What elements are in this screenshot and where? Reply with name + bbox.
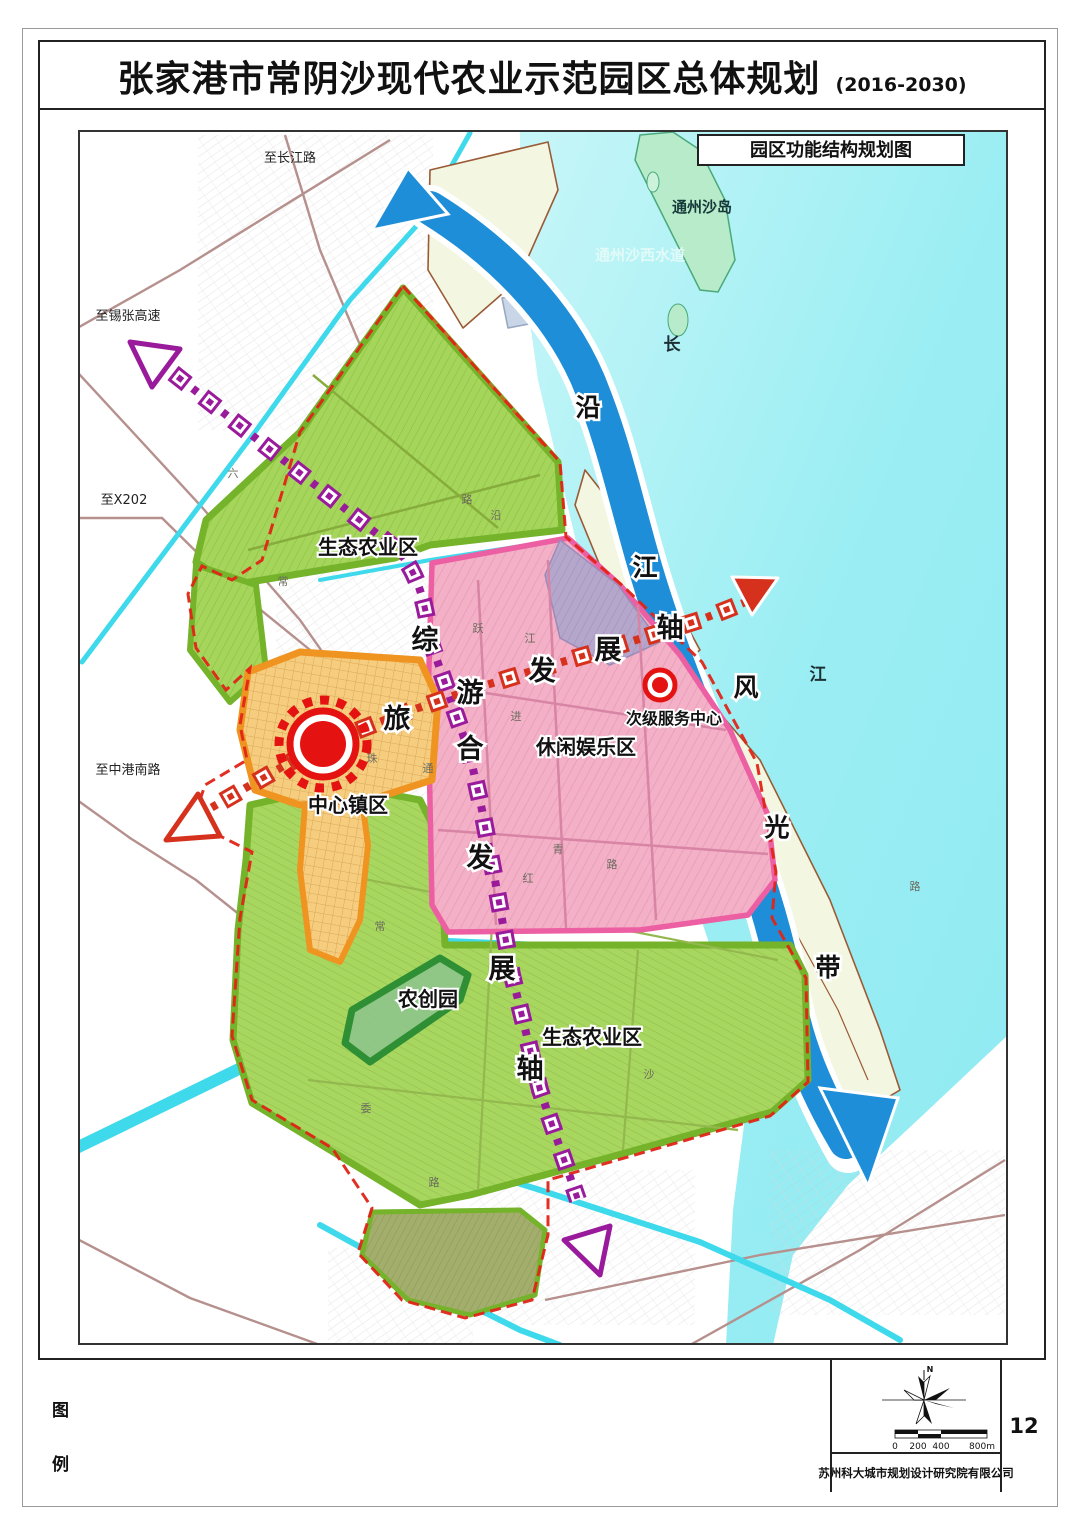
- road-name-char: 沿: [491, 509, 502, 522]
- road-name-char: 常: [278, 575, 289, 588]
- compass-and-scale: N 0 200 4: [832, 1360, 1000, 1454]
- road-name-char: 六: [228, 467, 239, 480]
- page-title: 张家港市常阴沙现代农业示范园区总体规划: [117, 59, 820, 100]
- page-number: 12: [1000, 1360, 1046, 1492]
- road-name-char: 珠: [367, 751, 378, 765]
- axis-char-zhou-vertical: 轴: [517, 1054, 544, 1085]
- scale-bar: 0 200 400 800m: [892, 1430, 995, 1452]
- secondary-service-center-marker: [645, 670, 675, 700]
- compass-cell: N 0 200 4: [832, 1360, 1000, 1454]
- zone-label-agri-innovation-park: 农创园: [397, 987, 458, 1011]
- axis-char-zhan-vertical: 展: [489, 954, 516, 985]
- road-name-char: 路: [429, 1176, 440, 1189]
- belt-char-feng: 风: [733, 673, 758, 702]
- belt-char-guang: 光: [763, 813, 789, 842]
- road-name-char: 进: [511, 710, 522, 723]
- axis-char-fa-horizontal: 发: [528, 655, 556, 687]
- belt-char-yan: 沿: [575, 393, 600, 422]
- belt-char-jiang: 江: [632, 553, 657, 582]
- water-label-tongzhousha-island: 通州沙岛: [672, 198, 732, 216]
- scale-tick-200: 200: [909, 1442, 926, 1452]
- road-label-to-zhonggang-south-road: 至中港南路: [95, 762, 160, 778]
- road-name-char: 跃: [473, 621, 484, 635]
- zone-label-central-town: 中心镇区: [308, 793, 388, 817]
- water-label-tongzhousha-west-channel: 通州沙西水道: [595, 246, 685, 264]
- compass-north-label: N: [927, 1365, 934, 1374]
- legend-cell: 图 例: [38, 1360, 832, 1492]
- belt-char-dai: 带: [815, 953, 840, 982]
- road-name-char: 路: [910, 880, 921, 893]
- compass-rose: N: [882, 1365, 966, 1424]
- road-label-to-xizhang-expressway: 至锡张高速: [95, 308, 160, 324]
- scale-tick-400: 400: [932, 1442, 949, 1452]
- road-name-char: 路: [462, 493, 473, 506]
- axis-char-zong: 综: [412, 624, 439, 656]
- company-name: 苏州科大城市规划设计研究院有限公司: [832, 1454, 1000, 1492]
- axis-char-fa-vertical: 发: [466, 842, 494, 874]
- title-row: 张家港市常阴沙现代农业示范园区总体规划 (2016-2030): [38, 50, 1046, 102]
- axis-char-zhou-horizontal: 轴: [657, 613, 684, 644]
- road-label-to-changjiang-road: 至长江路: [264, 150, 316, 166]
- zone-label-eco-agriculture-south: 生态农业区: [542, 1025, 642, 1049]
- page-title-years: (2016-2030): [836, 74, 967, 96]
- road-name-char: 江: [525, 632, 536, 645]
- map-canvas: 六常路沿跃江进红路青沙委路珠通常路 生态农业区休闲娱乐区中心镇区次级服务中心农创…: [78, 130, 1008, 1345]
- zone-label-eco-agriculture-north: 生态农业区: [318, 535, 418, 559]
- road-name-char: 通: [423, 762, 434, 775]
- road-name-char: 沙: [644, 1068, 655, 1081]
- legend-strip: 图 例 N: [38, 1358, 1046, 1490]
- map-title-box: 园区功能结构规划图: [697, 134, 965, 166]
- zone-label-secondary-service-center: 次级服务中心: [626, 709, 722, 728]
- axis-char-you: 游: [457, 678, 484, 709]
- title-rule: [38, 108, 1046, 110]
- legend-char-tu: 图: [52, 1396, 69, 1421]
- scale-tick-800: 800m: [969, 1442, 995, 1452]
- road-label-to-x202: 至X202: [101, 493, 148, 508]
- axis-char-zhan-horizontal: 展: [595, 635, 622, 666]
- road-name-char: 路: [607, 858, 618, 871]
- axis-char-he: 合: [457, 733, 484, 765]
- legend-char-li: 例: [52, 1450, 69, 1475]
- river-name-char-jiang: 江: [810, 665, 827, 685]
- red-axis-arrow-southwest: [166, 794, 220, 840]
- zone-label-leisure-entertainment: 休闲娱乐区: [535, 735, 636, 759]
- road-name-char: 常: [375, 920, 386, 933]
- river-name-char-chang: 长: [664, 334, 682, 355]
- road-name-char: 委: [361, 1102, 372, 1115]
- road-name-char: 青: [553, 843, 564, 856]
- axis-char-lv: 旅: [384, 703, 411, 735]
- central-town-marker: [279, 700, 367, 788]
- scale-tick-0: 0: [892, 1442, 898, 1452]
- road-name-char: 红: [523, 872, 534, 885]
- page: 张家港市常阴沙现代农业示范园区总体规划 (2016-2030): [0, 0, 1080, 1530]
